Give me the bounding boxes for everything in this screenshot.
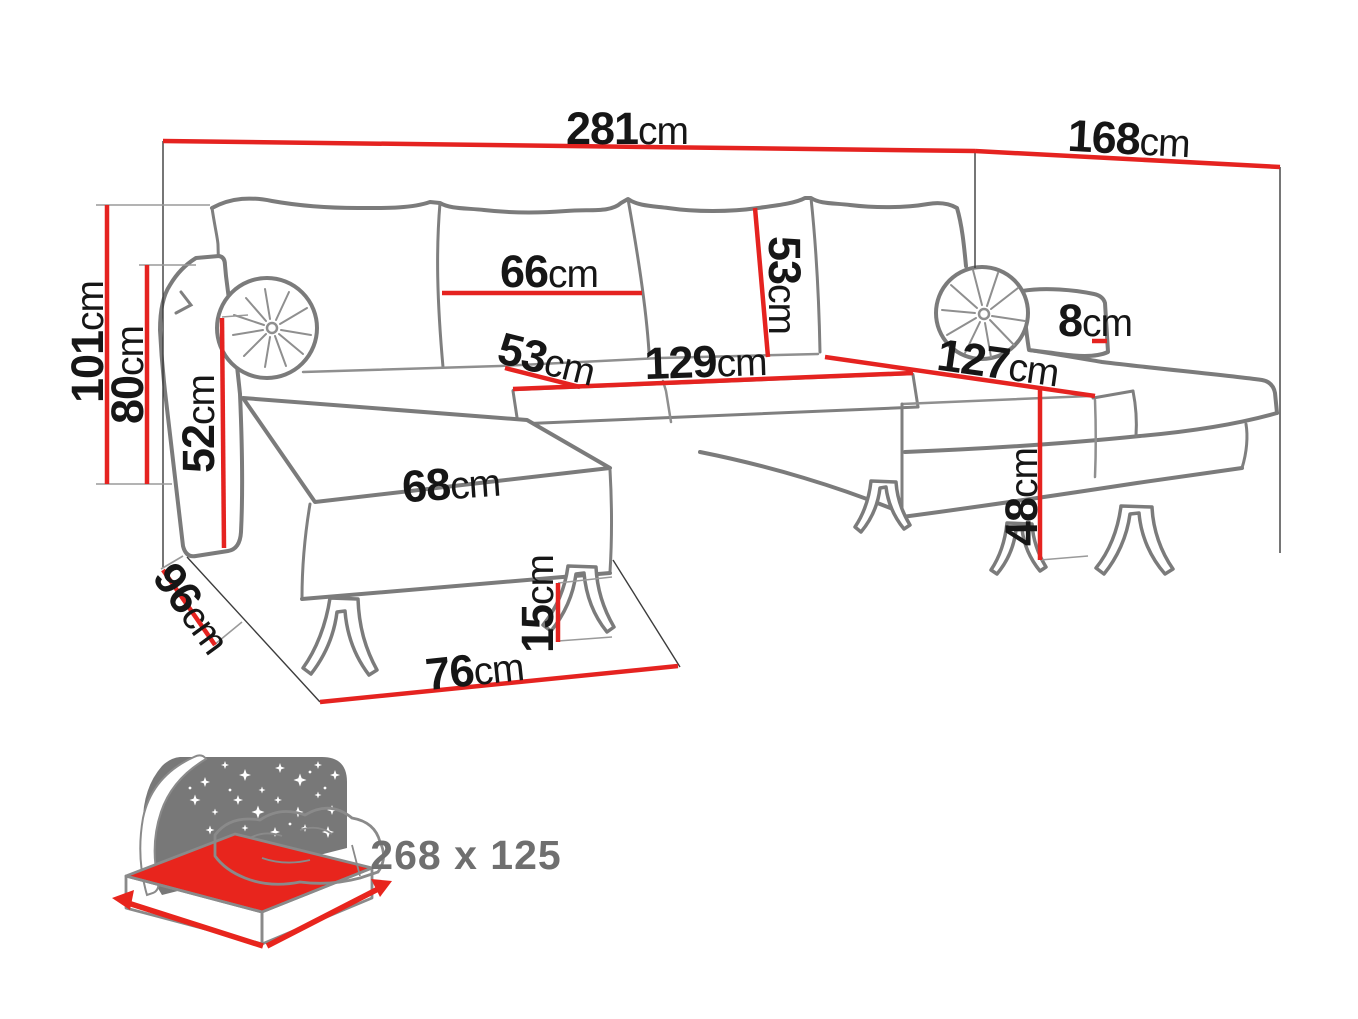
diagram-canvas: 281cm 168cm 101cm 80cm 52cm 96cm 66cm 53…: [0, 0, 1358, 1019]
middle-front-bottom-edge: [518, 407, 918, 424]
sleeping-area-label: 268 x 125: [370, 832, 561, 878]
sleeping-function-icon: 268 x 125: [112, 755, 562, 946]
right-chaise-near-top-edge: [1093, 391, 1133, 398]
pillow-button: [979, 309, 989, 319]
tick-15-bottom: [558, 637, 612, 641]
dim-total-depth-right-label: 168cm: [1067, 110, 1192, 167]
dim-back-height-label: 80cm: [102, 326, 153, 424]
sofa-leg: [1096, 506, 1173, 574]
right-chaise-base-bottom-edge: [902, 468, 1242, 517]
dim-chaise-depth-left-label: 96cm: [143, 553, 242, 662]
back-cushion-seam-2: [628, 199, 649, 352]
guide-76-right: [613, 560, 680, 667]
sofa-line-art: [160, 198, 1277, 675]
dim-armrest-height-label: 52cm: [173, 375, 224, 473]
right-chaise-cushion-end-edge: [1133, 391, 1136, 436]
dim-seat-depth-label: 53cm: [493, 322, 600, 395]
dim-chaise-width-front-label: 76cm: [423, 639, 526, 700]
right-chaise-top-front-edge: [902, 396, 1090, 404]
dim-seat-width-label: 129cm: [644, 334, 768, 389]
sofa-leg: [303, 598, 377, 675]
dim-total-width-label: 281cm: [566, 103, 688, 154]
round-pillow-left: [217, 278, 317, 378]
dim-armrest-width-right-label: 8cm: [1058, 295, 1132, 346]
pillow-button: [267, 323, 277, 333]
dim-seat-height-label: 48cm: [996, 448, 1047, 546]
right-chaise-base-right-edge: [1242, 424, 1247, 468]
left-chaise-base-right-edge: [610, 470, 612, 572]
left-chaise-base-left-edge: [302, 504, 310, 598]
right-chaise-far-edge: [1030, 350, 1277, 413]
tick-48-bottom: [1040, 556, 1088, 560]
back-cushion-seam-1: [438, 203, 443, 367]
right-chaise-front-seam: [1095, 400, 1096, 477]
right-chaise-end-and-front-edge: [905, 413, 1277, 452]
dim-leg-height-label: 15cm: [512, 555, 563, 653]
sofa-dimension-diagram: 281cm 168cm 101cm 80cm 52cm 96cm 66cm 53…: [0, 0, 1358, 1019]
dim-back-cushion-width-label: 66cm: [500, 246, 598, 297]
back-cushion-seam-3: [811, 198, 820, 352]
dim-back-cushion-height-label: 53cm: [759, 236, 810, 334]
